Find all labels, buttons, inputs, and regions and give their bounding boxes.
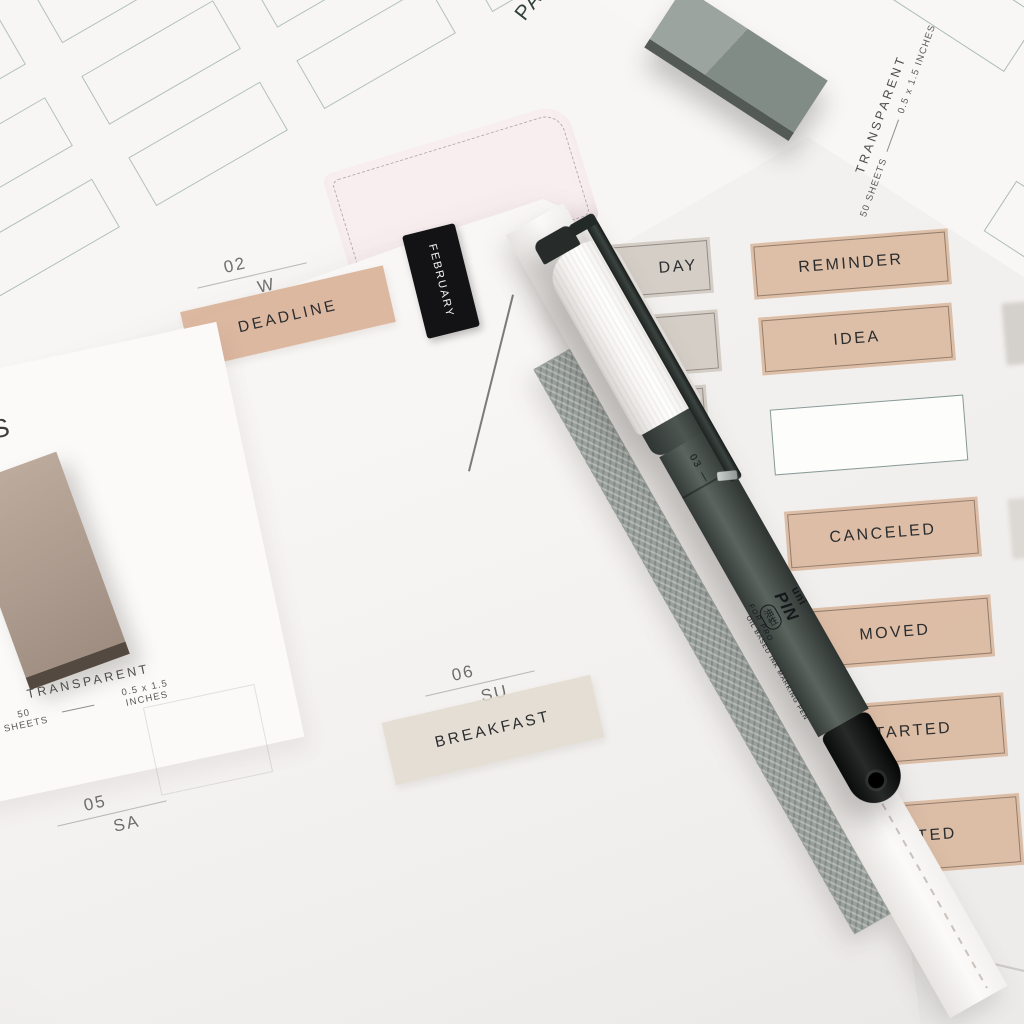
label-text: IDEA xyxy=(833,328,882,350)
card-partial-text: GS xyxy=(0,410,18,451)
flatlay-photo: PA TRANSPARENT 50 SHEETS 0.5 x 1.5 INCHE… xyxy=(0,0,1024,1024)
label-text: CANCELED xyxy=(829,521,937,547)
pack-count: 50 SHEETS xyxy=(0,702,57,736)
label-text: BREAKFAST xyxy=(433,708,552,752)
label-text: DAY xyxy=(658,257,699,278)
pen-nib-size: 03 — xyxy=(687,452,712,485)
brown-sticky-note-stack xyxy=(0,452,130,690)
label-text: DEADLINE xyxy=(237,297,340,337)
divider-line xyxy=(61,704,94,712)
label-text: MOVED xyxy=(859,621,931,645)
label-text: REMINDER xyxy=(798,251,904,277)
month-tab-label: FEBRUARY xyxy=(426,243,456,319)
